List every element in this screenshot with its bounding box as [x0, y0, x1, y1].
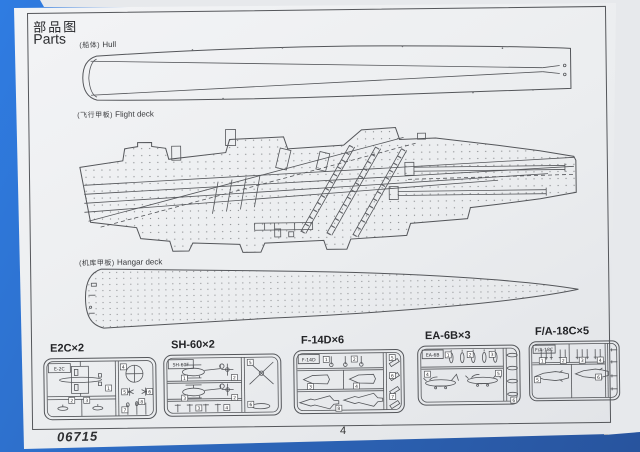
svg-text:1: 1	[541, 359, 544, 365]
svg-text:7: 7	[123, 408, 126, 414]
part-number-badge: 1	[539, 358, 545, 365]
sh60-small-parts	[175, 403, 270, 412]
svg-text:3: 3	[197, 406, 200, 412]
part-number-badge: 4	[424, 371, 430, 378]
svg-text:3: 3	[183, 396, 186, 402]
part-number-badge: 3	[489, 351, 495, 358]
part-number-badge: 2	[232, 394, 238, 401]
svg-text:7: 7	[391, 394, 394, 400]
svg-text:E-2C: E-2C	[54, 366, 65, 372]
e2c-sprue-tag: E-2C	[48, 363, 70, 372]
part-number-badge: 6	[595, 374, 601, 381]
sprue-diagram-f14d: F-14D 1 2 3 4 5 6 7 8	[291, 346, 408, 417]
svg-text:1: 1	[447, 353, 450, 359]
part-number-badge: 1	[181, 375, 187, 382]
part-number-badge: 6	[248, 401, 254, 408]
svg-text:3: 3	[581, 358, 584, 364]
svg-text:5: 5	[391, 355, 394, 361]
hull-diagram	[72, 40, 618, 109]
sprue-diagram-sh60: SH-60F 1	[161, 351, 284, 420]
page-title-english: Parts	[33, 31, 66, 47]
part-number-badge: 5	[495, 370, 501, 377]
part-number-badge: 4	[597, 357, 603, 364]
e2c-radome-part	[126, 365, 143, 382]
part-number-badge: 3	[308, 384, 314, 391]
svg-text:3: 3	[491, 352, 494, 358]
part-number-badge: 5	[122, 389, 128, 396]
sprue-diagram-fa18c: F/A-18C 1 2 3	[527, 338, 623, 405]
flight-deck-label-en: Flight deck	[115, 109, 154, 118]
part-number-badge: 6	[389, 373, 395, 380]
part-number-badge: 3	[84, 397, 90, 404]
svg-text:F/A-18C: F/A-18C	[535, 347, 553, 353]
part-number-badge: 4	[354, 383, 360, 390]
part-number-badge: 2	[351, 356, 357, 363]
f14d-sprue-tag: F-14D	[298, 354, 319, 363]
svg-text:4: 4	[355, 384, 358, 390]
flight-deck-diagram	[67, 113, 619, 258]
sprue-title-fa18c: F/A-18C×5	[535, 325, 589, 338]
fa18c-jet-2	[575, 368, 608, 379]
part-number-badge: 7	[390, 394, 396, 401]
svg-text:5: 5	[123, 390, 126, 396]
f14d-gear-parts	[329, 356, 363, 367]
svg-text:4: 4	[426, 372, 429, 378]
svg-text:2: 2	[233, 375, 236, 381]
svg-text:1: 1	[107, 386, 110, 392]
svg-text:6: 6	[391, 373, 394, 379]
part-number-badge: 2	[69, 397, 75, 404]
part-number-badge: 3	[579, 357, 585, 364]
f14d-nose-sections	[303, 374, 375, 384]
part-number-badge: 2	[231, 374, 237, 381]
part-number-badge: 4	[224, 405, 230, 412]
svg-text:6: 6	[249, 402, 252, 408]
part-number-badge: 2	[560, 357, 566, 364]
part-number-badge: 8	[336, 405, 342, 412]
part-number-badge: 2	[467, 352, 473, 359]
svg-text:3: 3	[85, 398, 88, 404]
footer-page-number: 4	[340, 425, 346, 437]
part-number-badge: 3	[196, 405, 202, 412]
fa18c-sprue-tag: F/A-18C	[533, 345, 555, 353]
part-number-badge: 5	[534, 377, 540, 384]
svg-text:2: 2	[469, 352, 472, 358]
part-number-badge: 1	[323, 356, 329, 363]
page-border-frame: 部品图 Parts (船体) Hull (飞行甲板) Flight deck	[27, 6, 611, 430]
f14d-winglet-parts	[389, 358, 400, 408]
part-number-badge: 1	[106, 385, 112, 392]
part-number-badge: 5	[247, 359, 253, 366]
svg-text:8: 8	[337, 406, 340, 412]
svg-text:2: 2	[562, 358, 565, 364]
ea6b-tank-parts	[506, 353, 518, 396]
svg-text:1: 1	[325, 357, 328, 363]
footer-kit-number: 06715	[57, 429, 98, 445]
part-number-badge: 3	[182, 395, 188, 402]
part-number-badge: 6	[511, 397, 517, 404]
part-number-badge: 4	[120, 364, 126, 371]
part-number-badge: 5	[389, 355, 395, 362]
svg-text:4: 4	[599, 358, 602, 364]
sprue-title-ea6b: EA-6B×3	[425, 330, 471, 343]
svg-text:5: 5	[536, 378, 539, 384]
svg-text:2: 2	[353, 357, 356, 363]
sprue-title-f14d: F-14D×6	[301, 334, 344, 347]
part-number-badge: 7	[122, 407, 128, 414]
e2c-aircraft-topview	[59, 361, 101, 397]
sprue-title-sh60: SH-60×2	[171, 339, 215, 352]
part-number-badge: 8	[139, 399, 145, 406]
svg-text:6: 6	[597, 375, 600, 381]
svg-text:2: 2	[233, 395, 236, 401]
svg-text:1: 1	[183, 376, 186, 382]
part-number-badge: 1	[445, 352, 451, 359]
sprue-diagram-e2c: E-2C 1 2 3 4 5	[41, 354, 160, 423]
sprue-diagram-ea6b: EA-6B	[415, 342, 524, 409]
svg-text:2: 2	[70, 398, 73, 404]
svg-text:6: 6	[148, 389, 151, 395]
ea6b-sprue-tag: EA-6B	[422, 350, 443, 359]
svg-text:3: 3	[309, 384, 312, 390]
sh60-helicopter-2	[183, 384, 225, 398]
svg-text:8: 8	[140, 399, 143, 405]
svg-text:5: 5	[497, 371, 500, 377]
sh60-sprue-tag: SH-60F	[168, 359, 193, 368]
svg-text:4: 4	[122, 365, 125, 371]
svg-text:4: 4	[225, 405, 228, 411]
svg-text:5: 5	[249, 360, 252, 366]
e2c-propeller-parts	[126, 388, 150, 396]
photo-of-instruction-page: { "header": { "title_zh": "部品图", "title_…	[0, 0, 640, 452]
sprue-title-e2c: E2C×2	[50, 342, 84, 354]
svg-text:6: 6	[512, 398, 515, 404]
part-number-badge: 6	[147, 388, 153, 395]
svg-text:EA-6B: EA-6B	[426, 352, 440, 358]
svg-text:F-14D: F-14D	[302, 357, 316, 363]
